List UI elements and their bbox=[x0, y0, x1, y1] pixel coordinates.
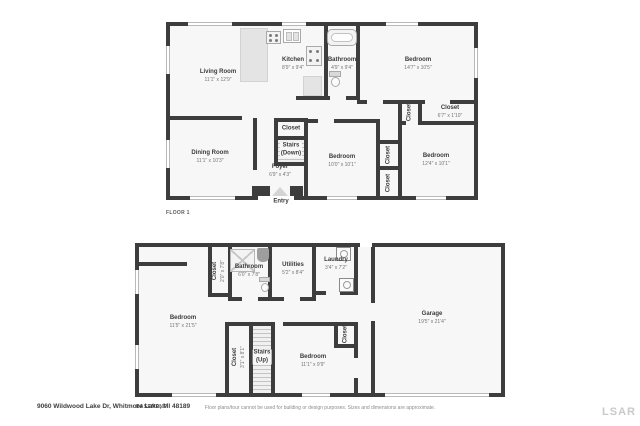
room-dims: 11'1" x 10'3" bbox=[191, 158, 228, 164]
fridge-icon bbox=[303, 76, 322, 96]
room-label-bedroom-top: Bedroom 14'7" x 10'5" bbox=[404, 57, 431, 71]
room-dims: 6'0" x 7'8" bbox=[235, 272, 263, 278]
room-label-closet-stairs2: Closet 3'1" x 8'1" bbox=[232, 346, 246, 368]
entry-arrow-icon bbox=[272, 187, 288, 196]
wall bbox=[376, 140, 402, 144]
room-name: Entry bbox=[273, 198, 288, 206]
window bbox=[172, 393, 216, 397]
room-dims: 6'9" x 4'3" bbox=[269, 172, 291, 178]
window bbox=[474, 48, 478, 78]
wall bbox=[228, 297, 242, 301]
room-name: Bedroom bbox=[422, 153, 449, 161]
kitchen-sink-icon bbox=[283, 29, 301, 43]
room-name: Stairs bbox=[280, 143, 302, 151]
room-dims: 2'0" x 7'8" bbox=[220, 260, 226, 282]
wall bbox=[304, 118, 308, 196]
wall bbox=[296, 96, 330, 100]
room-label-bedroom-left: Bedroom 11'5" x 21'5" bbox=[169, 315, 196, 329]
room-name: Bedroom bbox=[328, 154, 355, 162]
wall bbox=[357, 100, 367, 104]
room-label-foyer: Foyer 6'9" x 4'3" bbox=[269, 164, 291, 178]
room-label-bedroom-right: Bedroom 12'4" x 10'1" bbox=[422, 153, 449, 167]
wall bbox=[308, 119, 318, 123]
wall bbox=[354, 378, 358, 393]
room-dims: 3'1" x 8'1" bbox=[240, 346, 246, 368]
room-label-closet-bath: Closet 2'0" x 7'8" bbox=[212, 260, 226, 282]
room-dims: 11'5" x 21'5" bbox=[169, 323, 196, 329]
wall bbox=[139, 262, 187, 266]
window bbox=[386, 22, 418, 26]
window bbox=[135, 345, 139, 369]
room-name: Closet bbox=[342, 325, 350, 343]
room-label-stairs-up: Stairs (Up) bbox=[253, 350, 272, 365]
room-label-living: Living Room 11'1" x 12'9" bbox=[200, 69, 236, 83]
dryer-icon bbox=[339, 278, 354, 292]
wall bbox=[166, 116, 242, 120]
room-name: Living Room bbox=[200, 69, 236, 77]
room-dims: 4'9" x 9'4" bbox=[328, 65, 356, 71]
room-label-laundry: Laundry 3'4" x 7'2" bbox=[324, 257, 348, 271]
room-label-bedroom-small: Bedroom 11'1" x 9'9" bbox=[300, 354, 326, 368]
wall bbox=[354, 322, 358, 358]
window bbox=[302, 393, 330, 397]
room-name: Bedroom bbox=[169, 315, 196, 323]
window bbox=[190, 196, 235, 200]
stove-icon bbox=[306, 46, 322, 66]
window bbox=[166, 140, 170, 168]
room-dims: 14'7" x 10'5" bbox=[404, 65, 431, 71]
room-name: Garage bbox=[418, 311, 445, 319]
room-label-closet-mid-lower: Closet bbox=[385, 174, 393, 192]
cooktop-icon bbox=[266, 31, 281, 44]
room-label-bathroom1: Bathroom 4'9" x 9'4" bbox=[328, 57, 356, 71]
room-label-utilities: Utilities 5'2" x 8'4" bbox=[282, 262, 304, 276]
wall bbox=[398, 121, 406, 125]
room-name: Closet bbox=[212, 260, 220, 282]
room-dims: 11'1" x 12'9" bbox=[200, 77, 236, 83]
wall bbox=[376, 123, 380, 196]
window bbox=[282, 22, 306, 26]
wall bbox=[225, 322, 229, 393]
room-dims: 11'1" x 9'9" bbox=[300, 362, 326, 368]
room-label-bathroom2: Bathroom 6'0" x 7'8" bbox=[235, 264, 263, 278]
window bbox=[416, 196, 446, 200]
sink-icon bbox=[257, 248, 269, 262]
wall bbox=[420, 121, 478, 125]
bathtub-icon bbox=[327, 29, 357, 46]
room-name: Stairs bbox=[253, 350, 272, 358]
room-label-closet-bedroom: Closet bbox=[342, 325, 350, 343]
room-name: Closet bbox=[385, 146, 393, 164]
room-dims: 12'4" x 10'1" bbox=[422, 161, 449, 167]
room-dims: 19'5" x 21'4" bbox=[418, 319, 445, 325]
entry-label: Entry bbox=[273, 198, 288, 206]
room-dims: 8'9" x 9'4" bbox=[282, 65, 304, 71]
brand-watermark: LSAR bbox=[602, 406, 636, 418]
wall bbox=[274, 118, 308, 122]
room-label-bedroom-mid: Bedroom 10'0" x 10'1" bbox=[328, 154, 355, 168]
room-name: Bathroom bbox=[328, 57, 356, 65]
room-name: Laundry bbox=[324, 257, 348, 265]
wall bbox=[334, 119, 380, 123]
toilet-icon bbox=[261, 283, 269, 292]
wall bbox=[371, 321, 375, 397]
wall bbox=[258, 297, 272, 301]
room-dims: 10'0" x 10'1" bbox=[328, 162, 355, 168]
wall bbox=[271, 322, 275, 393]
wall bbox=[253, 118, 257, 170]
wall bbox=[398, 100, 402, 196]
room-name: Closet bbox=[438, 105, 463, 113]
kitchen-counter-icon bbox=[240, 28, 268, 82]
room-name: Closet bbox=[282, 125, 300, 133]
room-label-closet-mid-upper: Closet bbox=[385, 146, 393, 164]
room-name: Closet bbox=[232, 346, 240, 368]
wall bbox=[316, 291, 326, 295]
room-name: Dining Room bbox=[191, 150, 228, 158]
room-dims: 6'7" x 1'10" bbox=[438, 113, 463, 119]
window bbox=[188, 22, 232, 26]
wall bbox=[272, 297, 284, 301]
wall bbox=[371, 247, 375, 303]
room-name: Utilities bbox=[282, 262, 304, 270]
room-dims: 3'4" x 7'2" bbox=[324, 265, 348, 271]
room-name: Bedroom bbox=[404, 57, 431, 65]
room-dims: 5'2" x 8'4" bbox=[282, 270, 304, 276]
room-name: Closet bbox=[385, 174, 393, 192]
wall bbox=[450, 100, 478, 104]
wall bbox=[376, 166, 402, 170]
room-label-closet-stairs1: Closet bbox=[282, 125, 300, 133]
room-name-sub: (Down) bbox=[280, 150, 302, 158]
room-label-dining: Dining Room 11'1" x 10'3" bbox=[191, 150, 228, 164]
room-name: Bathroom bbox=[235, 264, 263, 272]
room-name-sub: (Up) bbox=[253, 357, 272, 365]
room-name: Kitchen bbox=[282, 57, 304, 65]
room-label-kitchen: Kitchen 8'9" x 9'4" bbox=[282, 57, 304, 71]
wall bbox=[290, 186, 303, 196]
floor1-caption: FLOOR 1 bbox=[166, 210, 190, 216]
room-label-stairs-down: Stairs (Down) bbox=[280, 143, 302, 158]
window bbox=[166, 46, 170, 74]
wall bbox=[300, 297, 316, 301]
wall bbox=[252, 186, 270, 196]
room-label-closet-hall: Closet 6'7" x 1'10" bbox=[438, 105, 463, 119]
floor1-plan bbox=[166, 22, 478, 200]
window bbox=[327, 196, 357, 200]
room-label-garage: Garage 19'5" x 21'4" bbox=[418, 311, 445, 325]
room-label-closet-hall-small: Closet bbox=[406, 103, 414, 121]
toilet-icon bbox=[331, 77, 340, 87]
property-address: 9060 Wildwood Lake Dr, Whitmore Lake, MI… bbox=[37, 403, 190, 410]
door-opening bbox=[360, 243, 372, 247]
disclaimer-text: Floor plans/tour cannot be used for buil… bbox=[205, 405, 435, 411]
wall bbox=[354, 247, 358, 291]
room-name: Bedroom bbox=[300, 354, 326, 362]
room-name: Foyer bbox=[269, 164, 291, 172]
floorplan-page: Living Room 11'1" x 12'9" Kitchen 8'9" x… bbox=[0, 0, 640, 426]
garage-door bbox=[385, 393, 489, 397]
window bbox=[135, 270, 139, 294]
room-name: Closet bbox=[406, 103, 414, 121]
